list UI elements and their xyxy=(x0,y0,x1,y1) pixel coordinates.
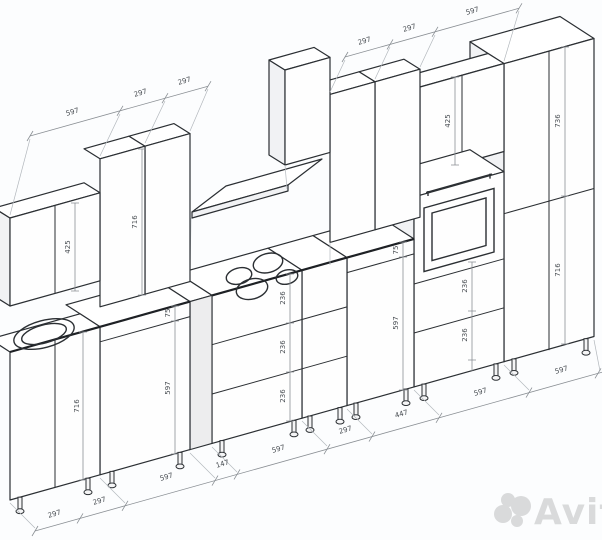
dim-label: 447 xyxy=(394,408,409,419)
dim-label: 425 xyxy=(64,240,72,253)
dim-label: 297 xyxy=(133,87,148,98)
dim-label: 597 xyxy=(159,471,174,482)
dim-label: 75 xyxy=(392,246,400,255)
wall-cabinet-low-left xyxy=(0,183,100,306)
dim-label: 297 xyxy=(357,35,372,46)
avito-watermark: Avito xyxy=(494,492,602,533)
dim-label: 236 xyxy=(279,389,287,403)
dim-label: 597 xyxy=(65,106,80,117)
dim-label: 716 xyxy=(131,215,139,229)
dim-label: 597 xyxy=(392,316,400,329)
sink-cabinet xyxy=(0,313,100,514)
dim-label: 597 xyxy=(473,386,488,397)
avito-logo-dot xyxy=(511,496,531,516)
dim-label: 147 xyxy=(215,458,230,469)
dim-label: 236 xyxy=(279,291,287,305)
dim-label: 236 xyxy=(279,340,287,354)
dim-label: 425 xyxy=(444,114,452,127)
dim-label: 75 xyxy=(164,309,172,318)
avito-logo-dot xyxy=(494,505,512,523)
dim-label: 716 xyxy=(73,399,81,413)
dim-label: 597 xyxy=(554,364,569,375)
avito-logo-dot xyxy=(511,515,523,527)
dim-label: 297 xyxy=(338,424,353,435)
dim-label: 236 xyxy=(461,279,469,293)
dim-label: 297 xyxy=(92,495,107,506)
dim-label: 597 xyxy=(271,443,286,454)
dim-label: 716 xyxy=(554,263,562,277)
hood-chimney-cabinet xyxy=(269,47,330,165)
dim-label: 736 xyxy=(554,114,562,128)
dim-label: 297 xyxy=(47,508,62,519)
isometric-kitchen-drawing: 597 297 297 297 297 597 297 297 597 147 … xyxy=(0,0,602,540)
dim-label: 297 xyxy=(402,22,417,33)
dim-label: 597 xyxy=(164,381,172,394)
dim-label: 297 xyxy=(177,75,192,86)
avito-watermark-text: Avito xyxy=(534,492,602,533)
kitchen-blueprint: 597 297 297 297 297 597 297 297 597 147 … xyxy=(0,0,602,540)
dim-label: 236 xyxy=(461,328,469,342)
dim-label: 597 xyxy=(465,5,480,16)
